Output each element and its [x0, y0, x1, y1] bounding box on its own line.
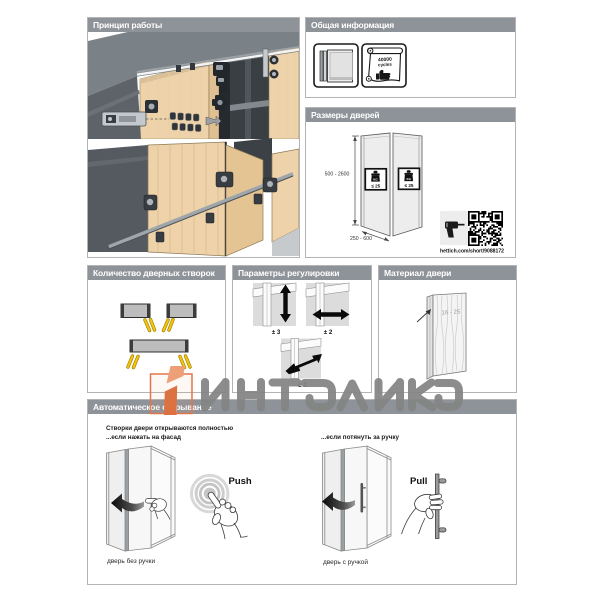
svg-text:≤ 25: ≤ 25 — [405, 183, 414, 188]
svg-text:...если потянуть за ручку: ...если потянуть за ручку — [321, 434, 399, 441]
svg-text:Створки двери открываются полн: Створки двери открываются полностью — [106, 425, 234, 432]
svg-text:KG: KG — [406, 177, 411, 181]
svg-text:cycles: cycles — [378, 62, 393, 68]
svg-text:250 - 600: 250 - 600 — [350, 236, 372, 242]
svg-text:≤ 25: ≤ 25 — [371, 183, 380, 188]
svg-text:± 2: ± 2 — [324, 329, 333, 336]
svg-text:...если нажать на фасад: ...если нажать на фасад — [106, 434, 181, 441]
svg-text:± 3: ± 3 — [272, 329, 281, 336]
svg-text:500 - 2600: 500 - 2600 — [325, 172, 350, 178]
svg-text:Push: Push — [229, 476, 252, 487]
svg-text:Pull: Pull — [410, 476, 427, 487]
svg-text:дверь с ручкой: дверь с ручкой — [323, 558, 368, 566]
svg-text:KG: KG — [373, 177, 378, 181]
svg-text:± 2: ± 2 — [298, 382, 307, 389]
svg-text:hettich.com/short/9088172: hettich.com/short/9088172 — [440, 249, 504, 255]
svg-text:дверь без ручки: дверь без ручки — [107, 557, 156, 565]
